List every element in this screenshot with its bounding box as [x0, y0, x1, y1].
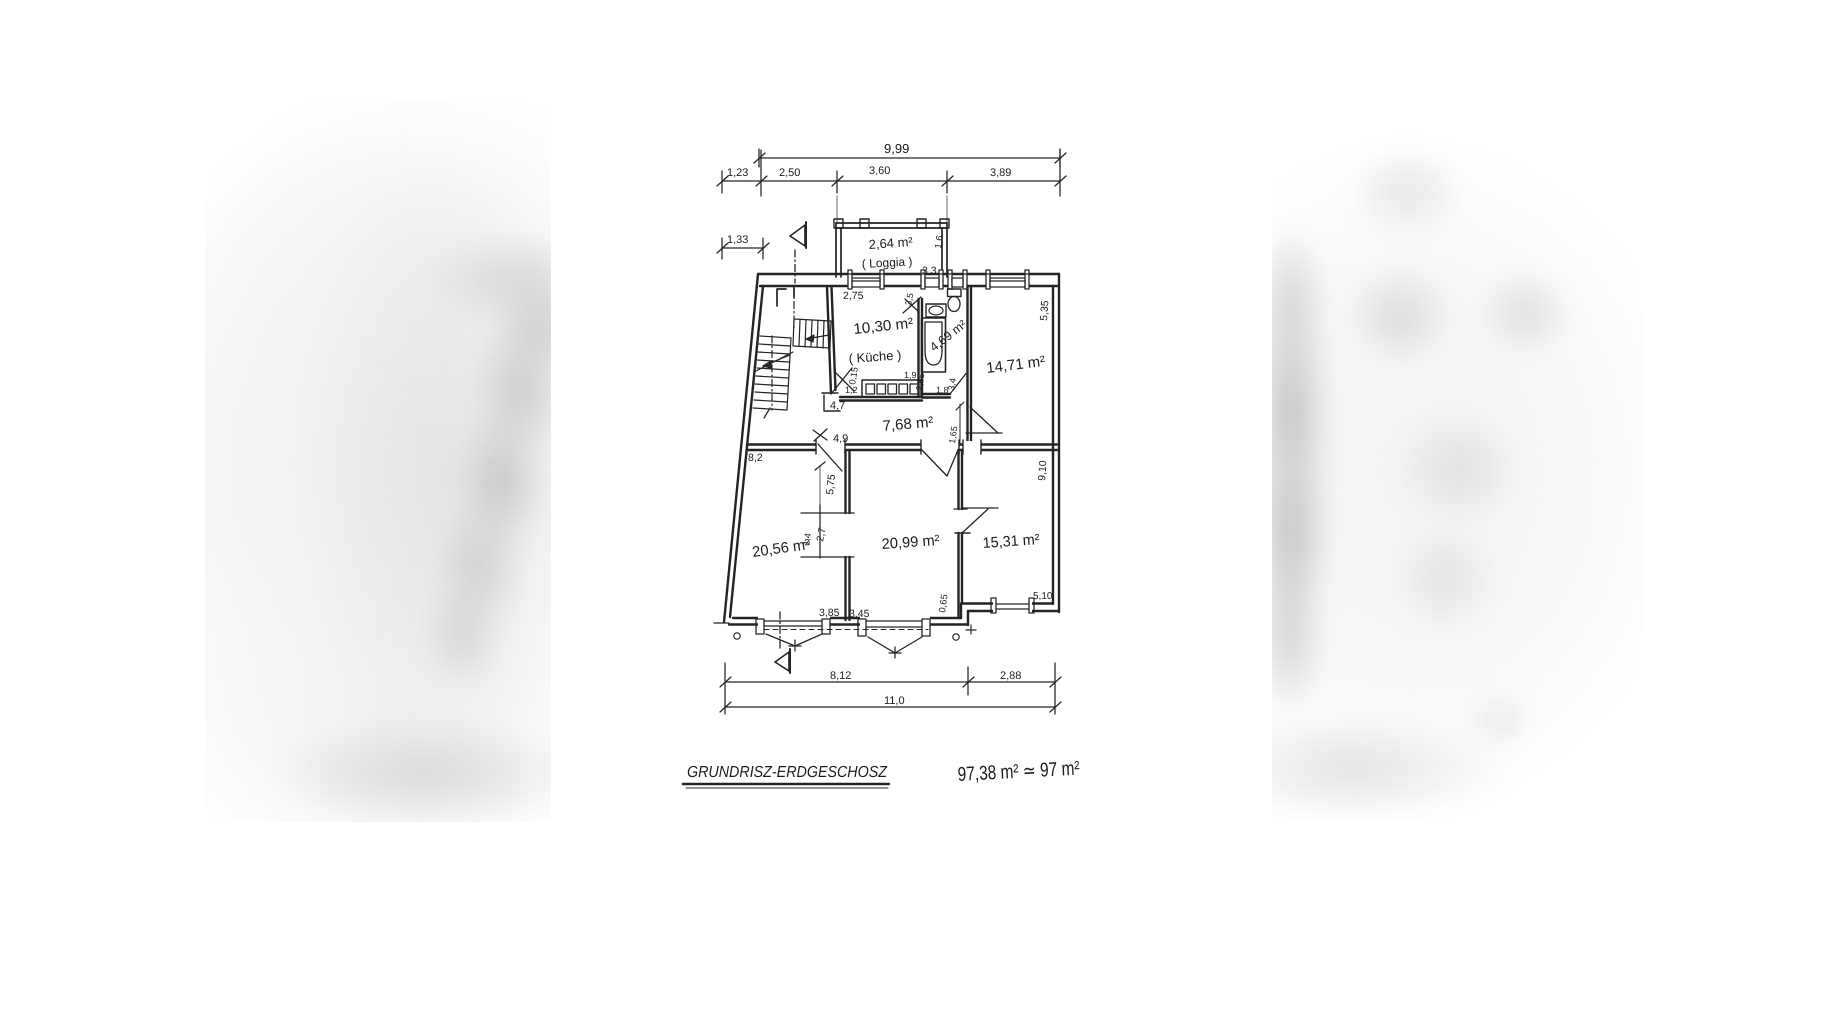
- svg-text:5,35: 5,35: [1038, 300, 1051, 321]
- svg-text:1,23: 1,23: [727, 167, 748, 179]
- svg-text:9,10: 9,10: [1036, 460, 1049, 481]
- svg-text:1,2: 1,2: [845, 385, 858, 395]
- svg-text:10,30 m²: 10,30 m²: [853, 315, 914, 338]
- svg-text:9,99: 9,99: [884, 141, 909, 156]
- svg-text:1,33: 1,33: [727, 234, 748, 246]
- svg-text:3,89: 3,89: [990, 167, 1011, 179]
- svg-text:4,7: 4,7: [830, 400, 845, 412]
- svg-text:( Loggia ): ( Loggia ): [861, 254, 912, 271]
- svg-text:15,31 m²: 15,31 m²: [982, 531, 1040, 552]
- svg-text:4,69 m²: 4,69 m²: [927, 317, 969, 354]
- svg-text:3,3: 3,3: [922, 265, 937, 277]
- svg-text:2,64 m²: 2,64 m²: [868, 234, 914, 252]
- svg-text:3,4: 3,4: [946, 377, 958, 391]
- svg-text:2,50: 2,50: [779, 167, 800, 179]
- svg-text:1,9: 1,9: [904, 370, 917, 380]
- svg-text:2,75: 2,75: [843, 290, 864, 302]
- svg-text:20,99 m²: 20,99 m²: [881, 532, 940, 553]
- svg-text:7,68 m²: 7,68 m²: [882, 414, 934, 435]
- svg-text:3,85: 3,85: [819, 607, 840, 619]
- svg-text:14,71 m²: 14,71 m²: [985, 353, 1046, 377]
- svg-text:3,60: 3,60: [869, 165, 890, 177]
- svg-text:GRUNDRISZ-ERDGESCHOSZ: GRUNDRISZ-ERDGESCHOSZ: [687, 764, 888, 781]
- svg-text:1,6: 1,6: [933, 235, 946, 250]
- svg-text:97,38 m² ≃ 97 m²: 97,38 m² ≃ 97 m²: [957, 758, 1080, 786]
- svg-text:11,0: 11,0: [884, 695, 905, 707]
- svg-text:3,45: 3,45: [849, 608, 870, 620]
- svg-text:2,88: 2,88: [1000, 670, 1021, 682]
- svg-text:8,12: 8,12: [830, 670, 851, 682]
- svg-text:0,65: 0,65: [937, 594, 950, 614]
- svg-text:0,15: 0,15: [847, 366, 860, 385]
- svg-text:5,10: 5,10: [1033, 591, 1053, 602]
- svg-text:5,75: 5,75: [824, 474, 838, 496]
- svg-text:4,9: 4,9: [833, 433, 848, 445]
- svg-text:2,65: 2,65: [914, 373, 926, 392]
- svg-text:2,7: 2,7: [815, 526, 828, 542]
- svg-text:( Küche ): ( Küche ): [848, 347, 902, 366]
- svg-text:8,2: 8,2: [748, 452, 763, 464]
